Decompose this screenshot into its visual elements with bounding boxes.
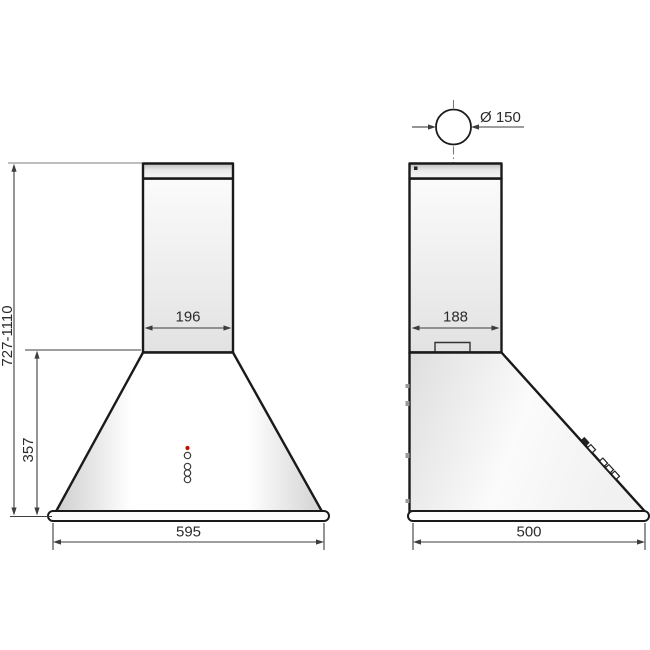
speed-button-3 bbox=[184, 476, 190, 482]
arrowhead-right bbox=[637, 539, 645, 544]
dim-label-188: 188 bbox=[443, 309, 468, 326]
rear-fixing-2 bbox=[406, 401, 410, 406]
hood-dimension-drawing: 196 595 727-1110 bbox=[0, 0, 650, 650]
arrowhead-left bbox=[53, 539, 61, 544]
arrowhead-right bbox=[316, 539, 324, 544]
speed-button-2 bbox=[184, 470, 190, 476]
front-cone-body bbox=[56, 353, 322, 512]
rear-fixing-4 bbox=[406, 499, 410, 503]
dim-label-total-height: 727-1110 bbox=[0, 305, 16, 366]
side-bottom-rim bbox=[408, 511, 649, 521]
light-button bbox=[184, 452, 190, 458]
arrowhead-right bbox=[428, 124, 436, 129]
front-view: 196 595 bbox=[48, 164, 329, 551]
front-chimney-body bbox=[143, 179, 233, 353]
dim-base-width: 595 bbox=[53, 523, 324, 550]
dim-base-depth: 500 bbox=[413, 523, 645, 550]
rear-fixing-3 bbox=[406, 453, 410, 458]
arrowhead-left bbox=[413, 539, 421, 544]
arrowhead-up bbox=[34, 351, 39, 359]
dim-label-500: 500 bbox=[516, 524, 541, 541]
side-chimney-top-band bbox=[410, 164, 502, 179]
duct-outlet-circle bbox=[436, 110, 471, 145]
arrowhead-left bbox=[471, 124, 479, 129]
dim-duct-diameter: Ø 150 bbox=[412, 109, 524, 145]
front-bottom-rim bbox=[48, 511, 329, 521]
side-cone-body bbox=[410, 353, 646, 512]
power-led-indicator bbox=[185, 446, 189, 450]
band-fixing-screw bbox=[414, 167, 418, 171]
arrowhead-down bbox=[11, 508, 16, 516]
dim-label-duct-diameter: Ø 150 bbox=[480, 109, 521, 126]
dim-label-595: 595 bbox=[176, 524, 201, 541]
dim-label-cone-height: 357 bbox=[20, 437, 37, 462]
side-chimney-body bbox=[410, 179, 502, 353]
arrowhead-up bbox=[11, 164, 16, 172]
side-view: Ø 150 188 bbox=[406, 100, 650, 550]
front-chimney-top-band bbox=[143, 164, 233, 179]
rear-fixing-1 bbox=[406, 384, 410, 388]
arrowhead-down bbox=[34, 508, 39, 516]
speed-button-1 bbox=[184, 463, 190, 469]
dim-label-196: 196 bbox=[175, 309, 200, 326]
